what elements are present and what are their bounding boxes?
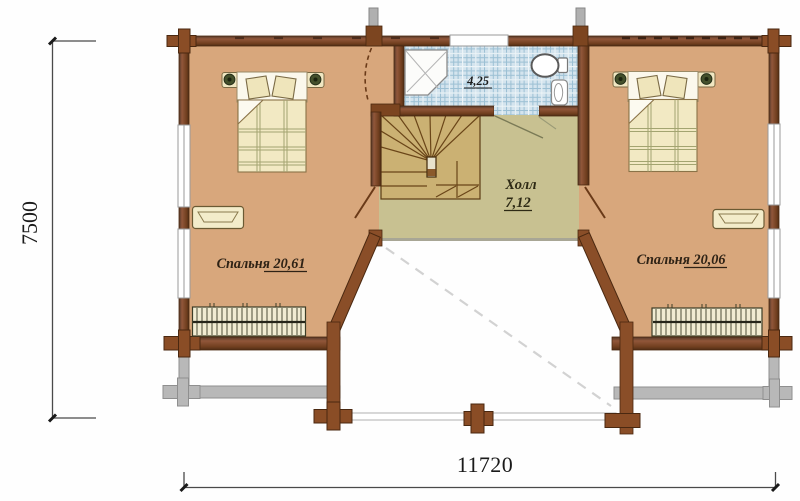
svg-text:7,12: 7,12 [505,195,530,211]
svg-text:Холл: Холл [504,177,536,193]
svg-text:Спальня 20,06: Спальня 20,06 [637,252,727,268]
svg-text:11720: 11720 [457,452,513,477]
svg-text:Спальня 20,61: Спальня 20,61 [217,256,306,272]
svg-text:7500: 7500 [17,201,42,245]
svg-text:4,25: 4,25 [466,74,489,88]
